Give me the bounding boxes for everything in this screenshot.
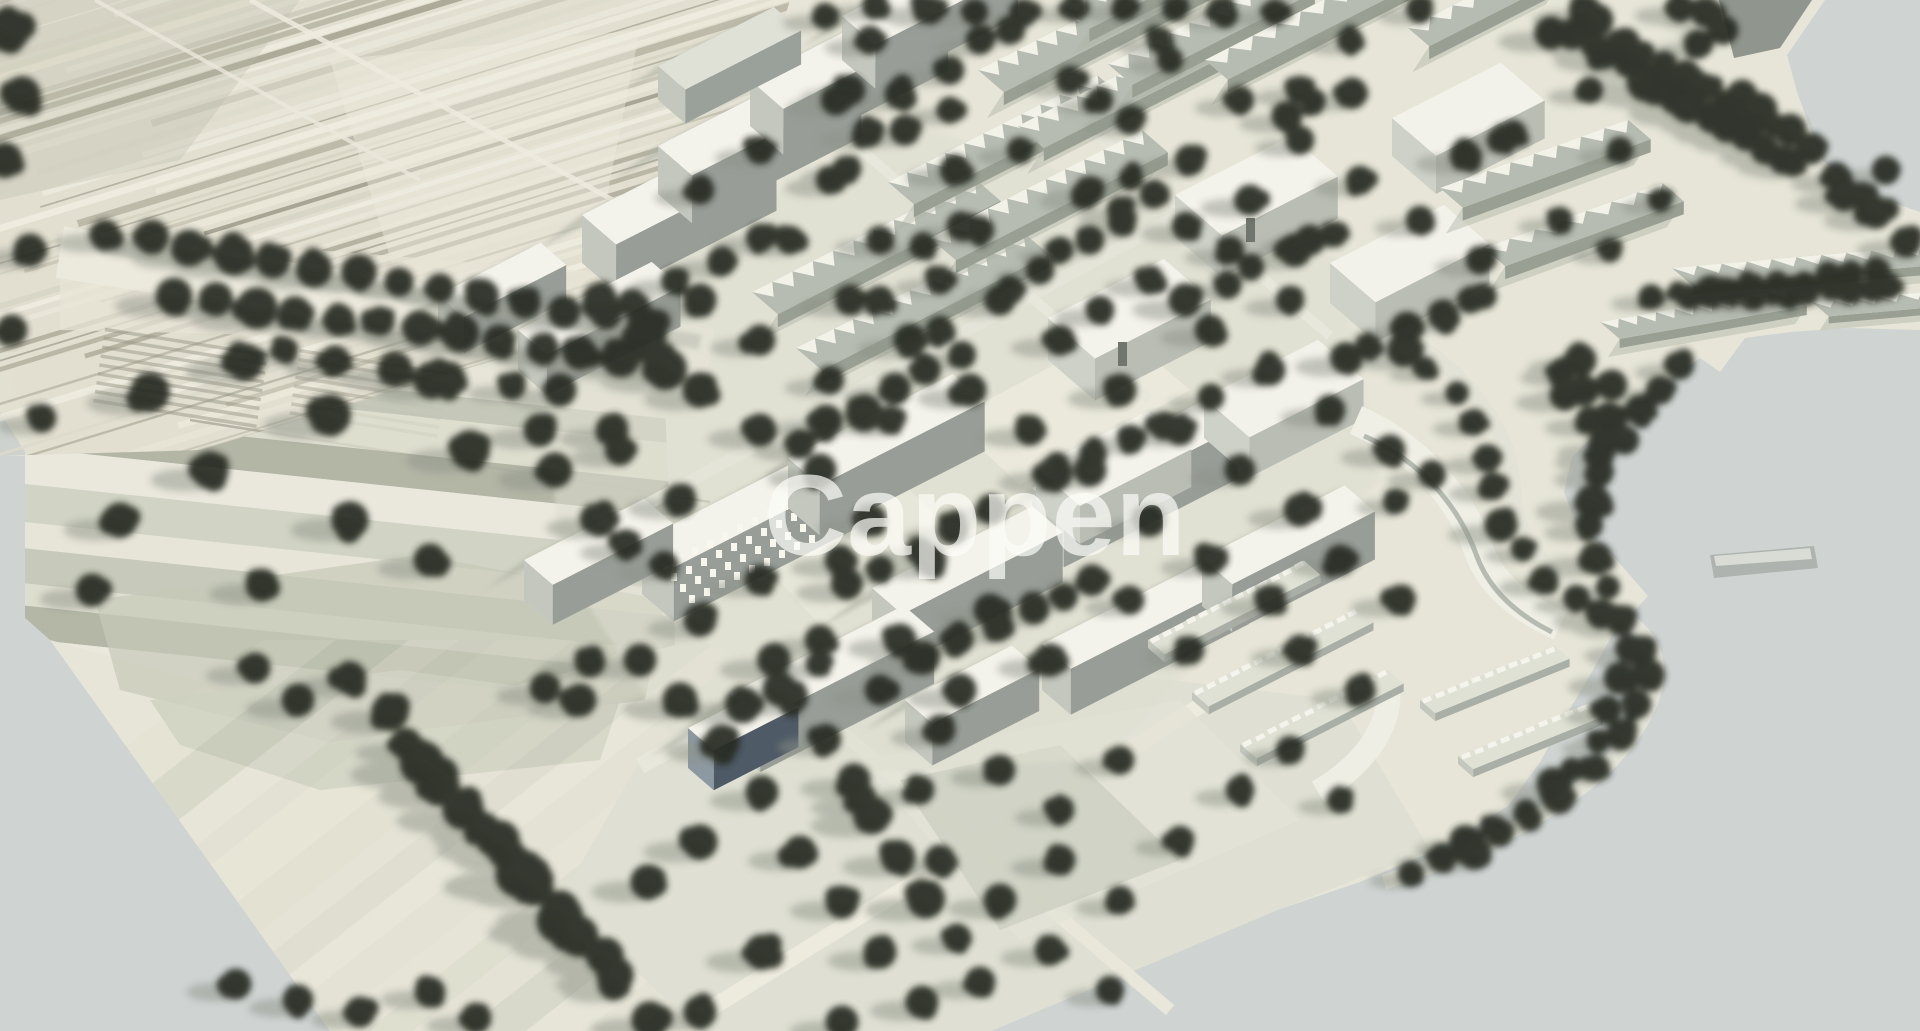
svg-text:Cappen: Cappen (764, 452, 1186, 580)
